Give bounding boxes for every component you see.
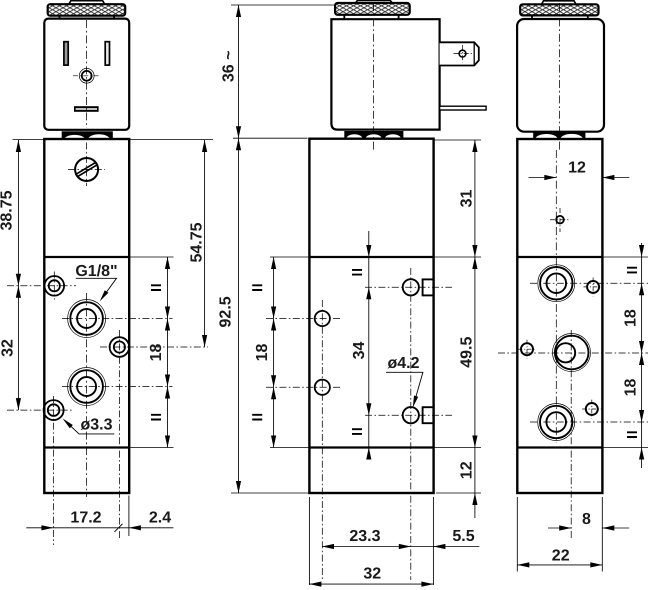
svg-text:ø4.2: ø4.2 xyxy=(387,355,419,372)
svg-text:23.3: 23.3 xyxy=(349,528,380,545)
svg-text:18: 18 xyxy=(622,309,639,327)
svg-text:36 ~: 36 ~ xyxy=(221,51,238,83)
svg-text:12: 12 xyxy=(568,160,586,177)
svg-text:ø3.3: ø3.3 xyxy=(80,417,112,434)
svg-text:G1/8": G1/8" xyxy=(75,263,117,280)
svg-text:18: 18 xyxy=(622,379,639,397)
svg-text:18: 18 xyxy=(254,344,271,362)
svg-text:31: 31 xyxy=(459,190,476,208)
svg-text:34: 34 xyxy=(351,342,368,360)
svg-text:32: 32 xyxy=(363,566,381,583)
svg-text:5.5: 5.5 xyxy=(452,528,474,545)
svg-text:54.75: 54.75 xyxy=(189,222,206,262)
svg-text:18: 18 xyxy=(148,344,165,362)
svg-text:17.2: 17.2 xyxy=(70,509,101,526)
svg-text:32: 32 xyxy=(0,339,17,357)
svg-text:2.4: 2.4 xyxy=(149,509,171,526)
svg-text:22: 22 xyxy=(552,548,570,565)
svg-text:49.5: 49.5 xyxy=(459,337,476,368)
svg-text:8: 8 xyxy=(582,511,591,528)
svg-text:92.5: 92.5 xyxy=(217,296,234,327)
svg-text:12: 12 xyxy=(459,461,476,479)
svg-text:38.75: 38.75 xyxy=(0,190,16,230)
